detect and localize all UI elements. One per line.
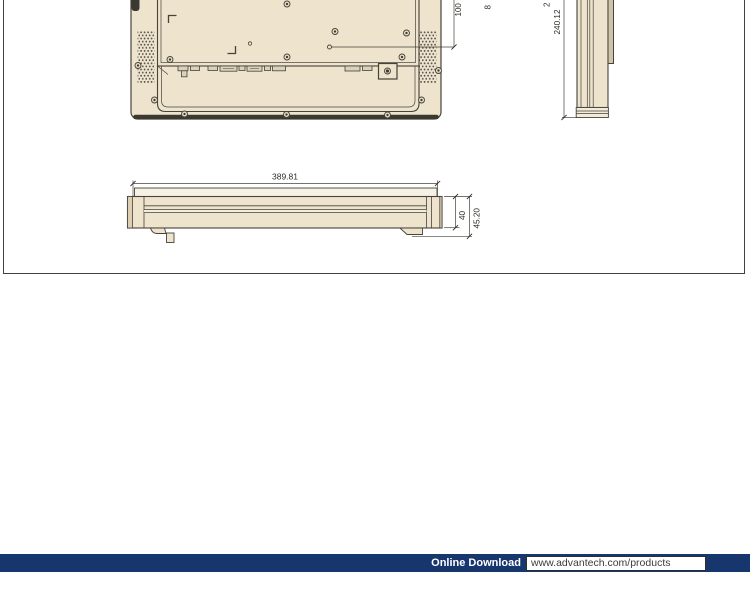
rear-view: 100 8	[131, 0, 493, 119]
vent-grid-right	[419, 32, 436, 84]
bottom-view: 389.81 40 45.20	[128, 172, 482, 243]
mechanical-dimension-drawing: 100 8 2 240.12 389.81	[0, 0, 750, 278]
clamp-peg	[167, 233, 175, 243]
dim-fragment-b: 2	[543, 2, 552, 7]
download-url-text[interactable]: www.advantech.com/products	[527, 557, 705, 571]
mount-slot	[132, 0, 140, 11]
dim-label-front-width: 389.81	[272, 172, 298, 182]
online-download-label: Online Download	[0, 554, 521, 572]
dim-label-side-height: 240.12	[553, 9, 562, 34]
side-view: 2 240.12	[543, 0, 614, 120]
foot-left	[151, 228, 167, 234]
front-bezel-edge	[576, 108, 608, 118]
dim-side-height	[561, 0, 578, 120]
foot-right	[400, 228, 423, 235]
dim-label-vesa: 100	[454, 3, 463, 17]
dim-label-depth-body: 40	[458, 210, 467, 220]
footer-bar: Online Download www.advantech.com/produc…	[0, 554, 750, 572]
download-url-box[interactable]: www.advantech.com/products	[526, 556, 706, 572]
vesa-hole	[328, 45, 332, 49]
dim-fragment-a: 8	[484, 5, 493, 10]
dim-label-depth-total: 45.20	[473, 208, 482, 229]
rear-hump	[608, 0, 614, 64]
vent-grid-left	[138, 32, 155, 84]
